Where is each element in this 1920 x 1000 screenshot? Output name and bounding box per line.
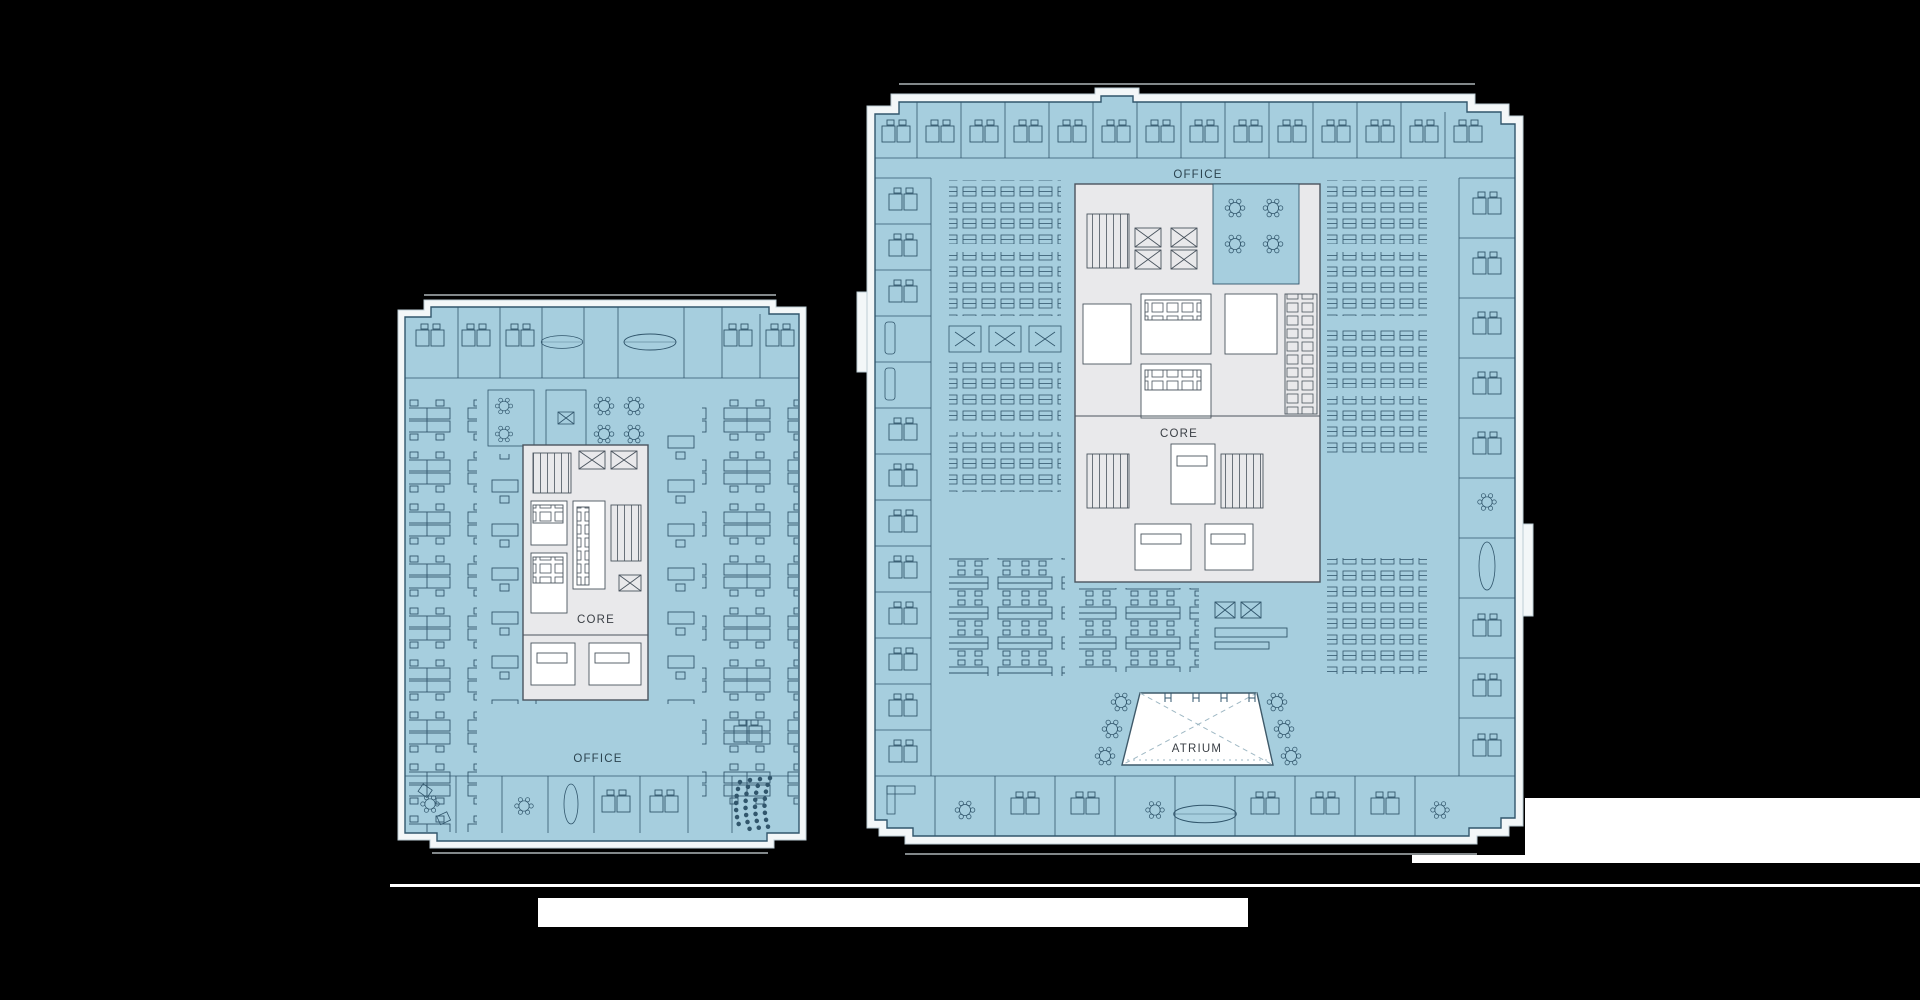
workstation-zone [409, 392, 477, 832]
footer-corner-strip [1412, 855, 1527, 863]
slide-canvas: CORE OFFICE [0, 0, 1920, 1000]
workstation-bank [1327, 558, 1427, 674]
workstation-bank [949, 180, 1061, 244]
atrium-label: ATRIUM [1172, 743, 1222, 755]
floor-plan-small: CORE OFFICE [398, 295, 806, 853]
office-label-large: OFFICE [1173, 169, 1222, 181]
core-label-small: CORE [577, 614, 615, 626]
floor-plans-graphic: CORE OFFICE [0, 0, 1920, 1000]
workstation-bank [949, 432, 1061, 492]
workstation-bank [949, 252, 1061, 316]
bench-desk-zone [949, 558, 1065, 676]
workstation-bank [1327, 326, 1427, 388]
footer-corner-panel [1525, 798, 1920, 863]
atrium: ATRIUM [1122, 693, 1273, 765]
workstation-zone [652, 434, 698, 704]
workstation-bank [1327, 252, 1427, 316]
workstation-bank [949, 362, 1061, 424]
core-small [523, 445, 648, 700]
core-label-large: CORE [1160, 428, 1198, 440]
floor-plan-large: OFFICE [857, 84, 1533, 854]
footer-rule-line [390, 884, 1920, 887]
workstation-bank [1327, 396, 1427, 456]
footer-caption-bar [538, 898, 1248, 927]
core-large [1075, 184, 1320, 582]
workstation-zone [702, 390, 798, 814]
workstation-bank [1327, 180, 1427, 244]
office-label-small: OFFICE [573, 753, 622, 765]
bench-desk-zone [1079, 588, 1199, 672]
